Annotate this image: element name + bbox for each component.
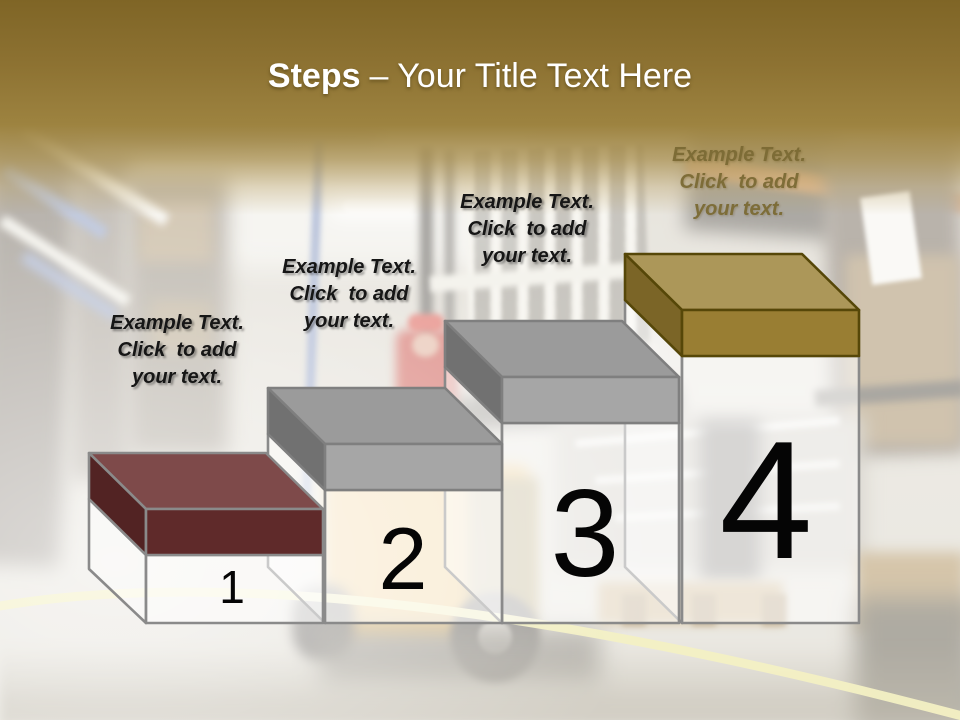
step-1-shape[interactable]: 1 (89, 453, 323, 623)
step-1-placeholder-text[interactable]: Example Text. Click to add your text. (87, 310, 267, 391)
step-4-number: 4 (719, 406, 812, 594)
step-4-placeholder-text[interactable]: Example Text. Click to add your text. (649, 142, 829, 223)
step-1-number: 1 (219, 561, 245, 613)
step-3-cap-front-face (502, 377, 679, 423)
slide-canvas: Steps– Your Title Text Here 4 3 (0, 0, 960, 720)
step-3-number: 3 (551, 465, 620, 603)
step-2-placeholder-text[interactable]: Example Text. Click to add your text. (259, 254, 439, 335)
step-1-cap-front-face (146, 509, 323, 555)
step-2-number: 2 (379, 509, 428, 608)
step-4-cap-front-face (682, 310, 859, 356)
step-2-cap-front-face (325, 444, 502, 490)
step-3-placeholder-text[interactable]: Example Text. Click to add your text. (437, 189, 617, 270)
